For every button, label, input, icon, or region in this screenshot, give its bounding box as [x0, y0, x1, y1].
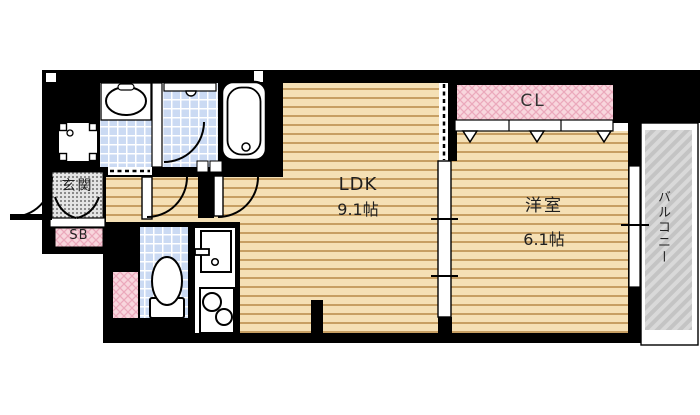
- kitchen-sink-icon: [195, 231, 231, 272]
- pipe-space: [113, 272, 138, 318]
- washbasin-icon: [101, 83, 151, 120]
- bathroom-floor: [152, 83, 218, 167]
- western-room-size-label: 6.1帖: [500, 231, 588, 249]
- shoe-box-label: SB: [55, 229, 103, 243]
- washroom-sliding-threshold: [108, 167, 152, 175]
- closet-label: CL: [488, 92, 578, 111]
- toilet-icon: [150, 257, 184, 318]
- bathtub-icon: [222, 82, 266, 160]
- western-room-label: 洋室: [504, 197, 584, 216]
- ldk-size-label: 9.1帖: [313, 201, 403, 219]
- washing-machine-icon: [58, 122, 98, 162]
- ldk-label: LDK: [318, 175, 398, 195]
- stove-icon: [200, 288, 234, 333]
- entrance-label: 玄関: [52, 179, 103, 194]
- balcony-label: バルコニー: [647, 167, 669, 287]
- floor-plan: LDK 9.1帖 洋室 6.1帖 CL 玄関 SB バルコニー: [0, 0, 700, 415]
